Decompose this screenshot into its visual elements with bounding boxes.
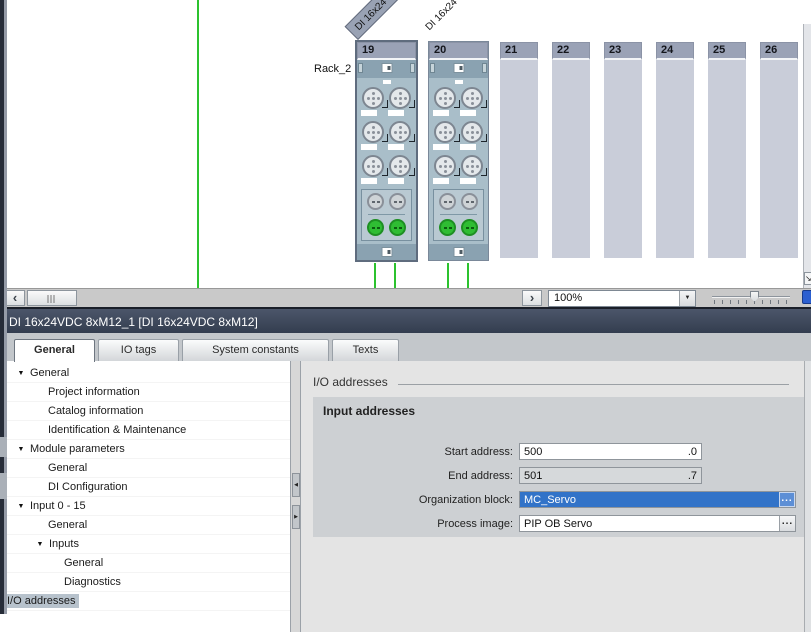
section-rule xyxy=(398,384,789,385)
m12-connector-row xyxy=(357,119,416,153)
panel-splitter[interactable]: ◀ ▶ xyxy=(290,361,301,632)
section-title: I/O addresses xyxy=(313,375,388,389)
nav-item-project-information[interactable]: Project information xyxy=(7,383,290,402)
collapse-right-button[interactable]: ▶ xyxy=(292,505,300,529)
io-addresses-pane: I/O addresses Input addresses Start addr… xyxy=(301,361,811,632)
zoom-level-value: 100% xyxy=(554,292,582,304)
nav-item-diagnostics[interactable]: Diagnostics xyxy=(7,573,290,592)
properties-scrollbar[interactable] xyxy=(804,361,811,632)
module-bottom-band xyxy=(357,244,416,260)
window-left-border xyxy=(0,0,7,614)
process-image-field[interactable]: PIP OB Servo ... xyxy=(519,515,796,532)
module-slot-20[interactable]: 20 xyxy=(429,42,488,260)
browse-button[interactable]: ... xyxy=(779,516,795,531)
nav-item-io-addresses[interactable]: I/O addresses xyxy=(7,592,290,611)
module-wire xyxy=(374,263,376,288)
nav-item-di-configuration[interactable]: DI Configuration xyxy=(7,478,290,497)
zoom-level-combobox[interactable]: 100% ▼ xyxy=(548,290,696,307)
nav-item-module-parameters[interactable]: ▼ Module parameters xyxy=(7,440,290,459)
scrollbar-thumb[interactable] xyxy=(27,290,77,306)
group-title: Input addresses xyxy=(323,404,415,418)
status-device-icon xyxy=(802,290,811,304)
collapse-left-button[interactable]: ◀ xyxy=(292,473,300,497)
end-address-field: 501 .7 xyxy=(519,467,702,484)
properties-title-bar: DI 16x24VDC 8xM12_1 [DI 16x24VDC 8xM12] xyxy=(0,307,811,333)
slot-number: 20 xyxy=(429,42,488,60)
power-connector-block xyxy=(433,189,484,241)
chevron-right-icon: › xyxy=(530,290,534,305)
triangle-left-icon: ◀ xyxy=(294,482,298,488)
start-address-field[interactable]: 500 .0 xyxy=(519,443,702,460)
m12-connector-row xyxy=(429,153,488,187)
triangle-right-icon: ▶ xyxy=(294,514,298,520)
organization-block-field[interactable]: MC_Servo ... xyxy=(519,491,796,508)
slider-ticks xyxy=(714,300,788,304)
tab-general[interactable]: General xyxy=(14,339,95,362)
zoom-slider[interactable] xyxy=(712,291,790,306)
module-name-ribbon[interactable]: DI 16x24 xyxy=(417,0,498,40)
nav-item-inputs-general[interactable]: General xyxy=(7,554,290,573)
collapse-arrow-icon[interactable]: ▼ xyxy=(15,370,27,377)
power-connector-block xyxy=(361,189,412,241)
nav-item-general[interactable]: ▼ General xyxy=(7,364,290,383)
module-top-band xyxy=(357,60,416,78)
m12-connector-row xyxy=(357,85,416,119)
nav-item-input-general[interactable]: General xyxy=(7,516,290,535)
rack-label: Rack_2 xyxy=(314,63,351,75)
tab-texts[interactable]: Texts xyxy=(332,339,399,361)
chevron-left-icon: ‹ xyxy=(13,290,17,305)
collapse-arrow-icon[interactable]: ▼ xyxy=(34,541,46,548)
m12-connector-row xyxy=(429,85,488,119)
module-top-band xyxy=(429,60,488,78)
m12-connector-row xyxy=(357,153,416,187)
scroll-left-button[interactable]: ‹ xyxy=(5,290,25,306)
m12-connector-row xyxy=(429,119,488,153)
module-wire xyxy=(447,263,449,288)
properties-panel: DI 16x24VDC 8xM12_1 [DI 16x24VDC 8xM12] … xyxy=(0,307,811,632)
empty-slot-22[interactable]: 22 xyxy=(552,42,590,258)
nav-item-module-general[interactable]: General xyxy=(7,459,290,478)
empty-slot-25[interactable]: 25 xyxy=(708,42,746,258)
module-bottom-band xyxy=(429,244,488,260)
collapse-arrow-icon[interactable]: ▼ xyxy=(15,503,27,510)
process-image-label: Process image: xyxy=(313,518,519,530)
scroll-right-button[interactable]: › xyxy=(522,290,542,306)
module-wire xyxy=(467,263,469,288)
bit-offset: .7 xyxy=(688,470,697,482)
diagonal-arrow-icon[interactable]: ↘ xyxy=(804,272,811,285)
horizontal-scrollbar-row: ‹ › 100% ▼ xyxy=(0,288,811,307)
module-slot-19[interactable]: 19 xyxy=(357,42,416,260)
bit-offset: .0 xyxy=(688,446,697,458)
organization-block-label: Organization block: xyxy=(313,494,519,506)
empty-slot-21[interactable]: 21 xyxy=(500,42,538,258)
module-name-ribbon[interactable]: DI 16x24 xyxy=(345,0,426,40)
tab-io-tags[interactable]: IO tags xyxy=(98,339,179,361)
dropdown-arrow-icon[interactable]: ▼ xyxy=(679,291,695,306)
browse-button[interactable]: ... xyxy=(779,492,795,507)
start-address-label: Start address: xyxy=(313,446,519,458)
slot-number: 19 xyxy=(357,42,416,60)
nav-item-identification-maintenance[interactable]: Identification & Maintenance xyxy=(7,421,290,440)
properties-nav-tree: ▼ General Project information Catalog in… xyxy=(7,361,290,632)
properties-tabstrip: General IO tags System constants Texts xyxy=(0,333,811,361)
nav-item-inputs[interactable]: ▼ Inputs xyxy=(7,535,290,554)
end-address-label: End address: xyxy=(313,470,519,482)
network-wire xyxy=(197,0,199,288)
empty-slot-23[interactable]: 23 xyxy=(604,42,642,258)
collapse-arrow-icon[interactable]: ▼ xyxy=(15,446,27,453)
properties-title: DI 16x24VDC 8xM12_1 [DI 16x24VDC 8xM12] xyxy=(9,315,258,329)
nav-item-catalog-information[interactable]: Catalog information xyxy=(7,402,290,421)
scrollbar-grip-icon xyxy=(48,295,57,303)
device-view-canvas[interactable]: Rack_2 DI 16x24 DI 16x24 19 xyxy=(0,0,811,288)
nav-item-input-0-15[interactable]: ▼ Input 0 - 15 xyxy=(7,497,290,516)
vertical-scrollbar[interactable]: ↘ xyxy=(803,24,811,288)
tab-system-constants[interactable]: System constants xyxy=(182,339,329,361)
empty-slot-26[interactable]: 26 xyxy=(760,42,798,258)
empty-slot-24[interactable]: 24 xyxy=(656,42,694,258)
module-wire xyxy=(394,263,396,288)
